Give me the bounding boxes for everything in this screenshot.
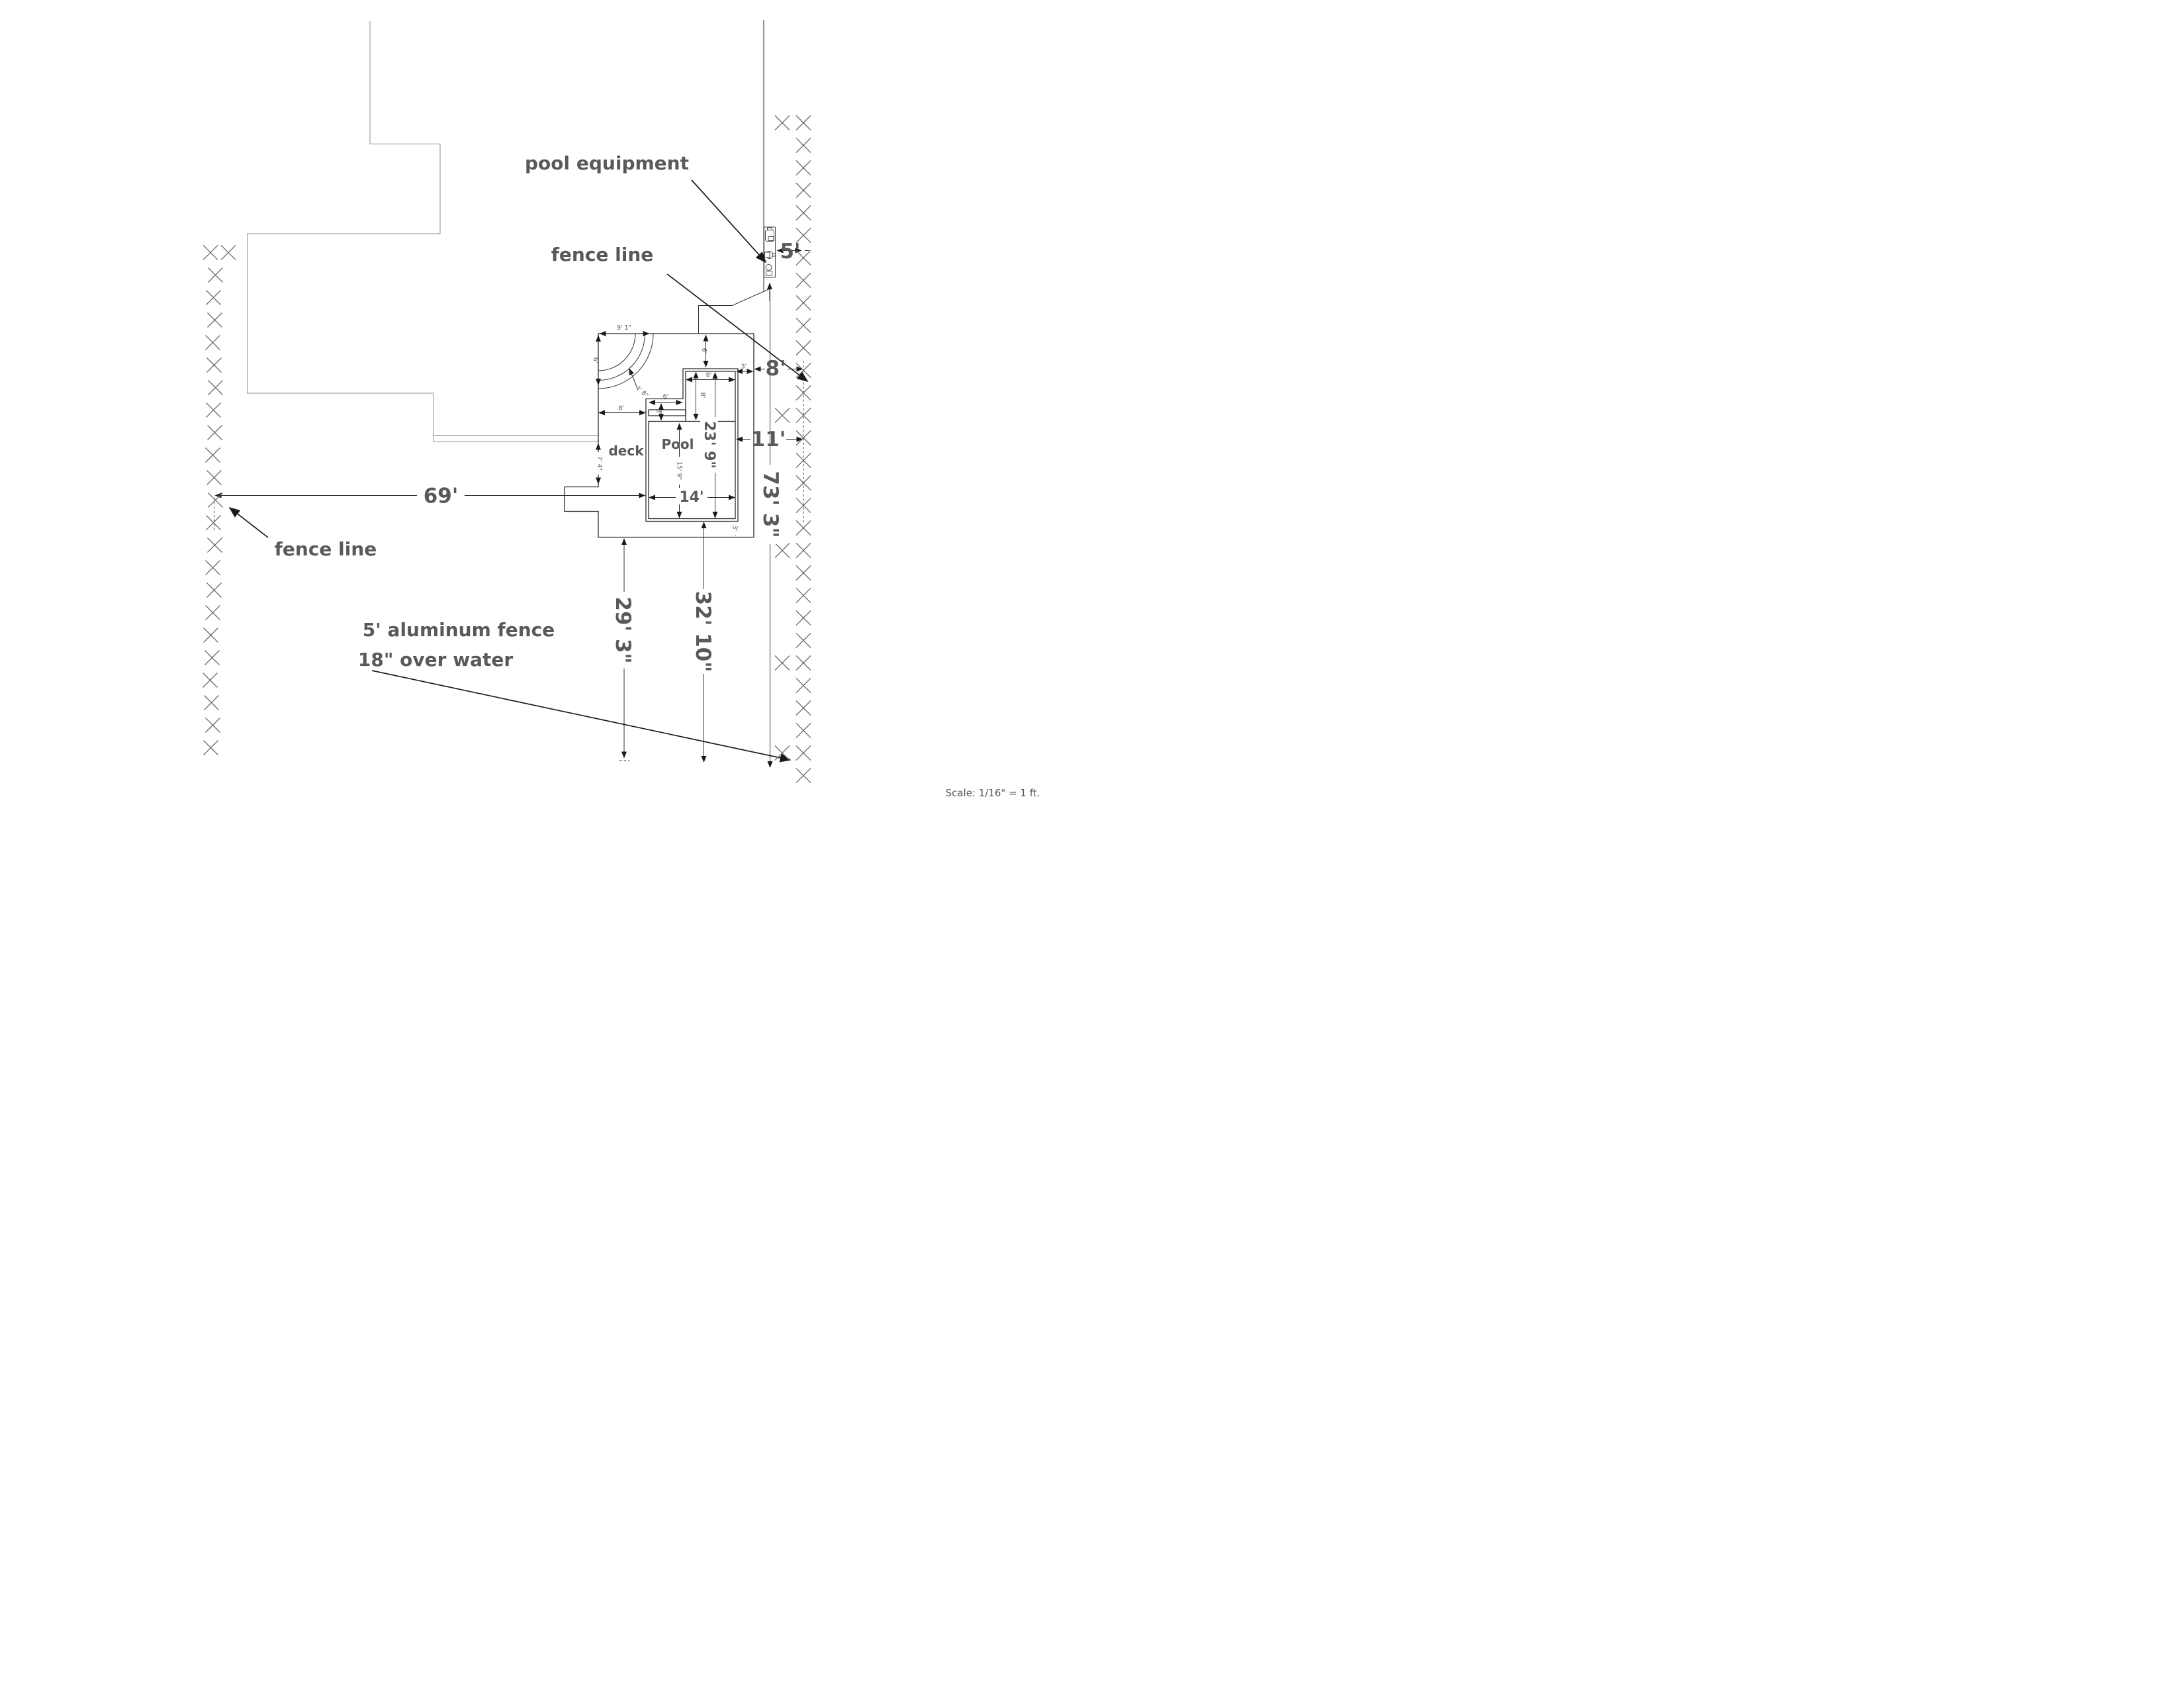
fence-x-mark	[796, 724, 811, 738]
dim-spa-length-label: 8'	[699, 393, 706, 399]
fence-x-mark	[203, 673, 218, 688]
fence-x-mark	[775, 116, 790, 130]
fence-x-mark	[208, 426, 222, 440]
fence-x-mark	[796, 746, 811, 761]
fence-x-mark	[203, 246, 218, 260]
dim-pool-main-length-label: 15' 9"	[676, 461, 683, 480]
fence-x-mark	[796, 521, 811, 536]
fence-x-mark	[796, 296, 811, 310]
fence-x-mark	[208, 381, 223, 395]
heater-base-icon	[766, 271, 772, 276]
fence-x-mark	[796, 543, 811, 558]
fence-x-mark	[206, 336, 220, 350]
dim-step-width-label: 6'	[663, 393, 669, 400]
fence-x-mark	[206, 561, 220, 575]
deck-label: deck	[608, 443, 644, 459]
fence-x-mark	[204, 628, 218, 643]
fence-x-mark	[796, 341, 811, 355]
site-plan-page: 69' 8' 11' 5' 29' 3" 32' 10" 73' 3" 23' …	[0, 0, 1092, 844]
fence-x-mark	[796, 183, 811, 198]
fence-x-mark	[796, 701, 811, 716]
pool-equipment-label: pool equipment	[525, 152, 689, 174]
fence-line-lower-leader	[230, 508, 268, 538]
site-plan-drawing: 69' 8' 11' 5' 29' 3" 32' 10" 73' 3" 23' …	[0, 0, 1092, 844]
fence-x-mark	[205, 696, 219, 710]
dim-23-9-label: 23' 9"	[701, 421, 717, 469]
dim-29-3-label: 29' 3"	[611, 596, 635, 663]
scale-note: Scale: 1/16" = 1 ft.	[946, 787, 1040, 799]
fence-return	[699, 289, 770, 334]
dim-14-group: 14'	[676, 488, 707, 506]
dim-corner-steps-label: 4' 8"	[634, 385, 650, 400]
dim-deck-to-pool-left-label: 8'	[619, 405, 625, 412]
fence-x-mark	[221, 246, 236, 260]
dim-spa-to-deck-right-label: 3'	[741, 363, 747, 371]
fence-x-mark	[796, 116, 811, 130]
fence-x-mark	[796, 633, 811, 648]
fence-x-mark	[206, 718, 220, 733]
dim-32-10-group: 32' 10"	[691, 589, 715, 674]
dim-deck-left-upper-label: 6'	[592, 357, 599, 363]
dim-corner-steps-leader	[629, 369, 637, 387]
fence-x-mark	[796, 679, 811, 693]
dim-29-3-group: 29' 3"	[611, 592, 635, 669]
fence-x-mark	[796, 273, 811, 288]
dim-deck-left-lower-label: 7' 4"	[596, 456, 603, 471]
dim-deck-to-spa-label: 6'	[700, 348, 707, 354]
fence-x-mark	[207, 471, 222, 485]
fence-x-mark	[207, 583, 222, 598]
fence-x-mark	[796, 588, 811, 603]
fence-line-upper-leader	[667, 274, 807, 381]
dim-32-10-label: 32' 10"	[691, 591, 715, 673]
fence-x-mark	[796, 138, 811, 153]
fence-x-mark	[205, 651, 220, 665]
dim-step-depth-label: 3'	[655, 409, 662, 415]
fence-x-mark	[208, 313, 222, 328]
fence-line-upper-label: fence line	[551, 244, 654, 265]
fence-x-mark	[208, 493, 223, 508]
fence-x-mark	[206, 606, 220, 620]
fence-x-mark	[796, 611, 811, 626]
fence-x-mark	[796, 566, 811, 581]
dim-spa-width-label: 8'	[706, 372, 712, 379]
dim-deck-top-label: 9' 1"	[617, 324, 631, 332]
fence-line-lower-label: fence line	[275, 538, 377, 560]
dim-11-label: 11'	[751, 428, 786, 451]
filter-band-icon	[768, 237, 774, 241]
fence-x-mark	[775, 656, 790, 671]
fence-x-mark	[206, 403, 221, 418]
dim-8-east-label: 8'	[765, 357, 786, 381]
dim-73-3-label: 73' 3"	[758, 471, 782, 538]
pump-motor-icon	[765, 252, 770, 258]
fence-note-line2: 18" over water	[358, 649, 513, 671]
pool-label: Pool	[662, 436, 694, 452]
fence-x-mark	[206, 516, 221, 530]
fence-x-mark	[775, 408, 790, 423]
pump-port-icon	[772, 254, 775, 256]
dim-5-label: 5'	[780, 240, 800, 263]
pool-step-bench	[649, 410, 686, 416]
aluminum-fence-leader	[372, 671, 790, 760]
dim-14-label: 14'	[679, 489, 704, 506]
fence-x-mark	[796, 206, 811, 220]
house-outline	[248, 21, 599, 442]
filter-cap-icon	[768, 228, 772, 230]
heater-icon	[766, 265, 772, 271]
fence-note-line1: 5' aluminum fence	[363, 619, 555, 641]
dim-69-label-group: 69'	[417, 485, 465, 508]
dim-73-3-group: 73' 3"	[758, 465, 782, 544]
fence-x-mark	[796, 318, 811, 333]
dim-23-9-group: 23' 9"	[700, 417, 718, 473]
west-fence-marks	[203, 246, 236, 755]
dim-pool-to-deck-bottom-label: 3'	[731, 526, 739, 532]
deck-corner-step-arcs	[598, 334, 653, 389]
fence-x-mark	[796, 656, 811, 671]
fence-x-mark	[796, 161, 811, 175]
fence-x-mark	[796, 769, 811, 783]
fence-x-mark	[775, 543, 790, 558]
fence-x-mark	[207, 358, 222, 373]
fence-x-mark	[208, 538, 222, 553]
pool-equipment-leader	[692, 180, 766, 262]
fence-x-mark	[208, 268, 223, 283]
fence-x-mark	[206, 448, 220, 463]
dim-69-label: 69'	[424, 485, 459, 508]
pool-equipment-group	[764, 227, 776, 301]
fence-x-mark	[206, 291, 221, 305]
fence-x-mark	[204, 741, 218, 755]
